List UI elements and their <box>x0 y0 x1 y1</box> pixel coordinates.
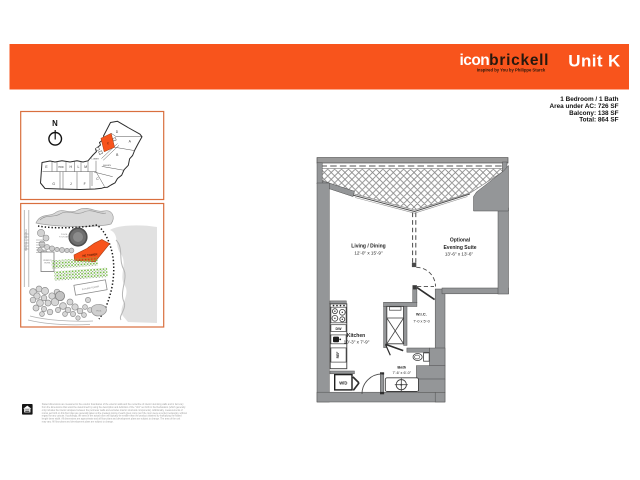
svg-text:regard for any cutouts. Accord: regard for any cutouts. Accordingly, the… <box>42 415 182 418</box>
svg-text:10'-3" x 7'-9": 10'-3" x 7'-9" <box>344 340 370 345</box>
svg-text:M: M <box>84 165 87 169</box>
svg-text:FOUNTAIN: FOUNTAIN <box>59 236 70 239</box>
svg-text:LOBBY: LOBBY <box>92 158 100 160</box>
svg-text:Living / Dining: Living / Dining <box>351 243 385 249</box>
svg-text:G: G <box>52 182 55 186</box>
svg-text:may vary. All floor plans and: may vary. All floor plans and developmen… <box>42 420 114 423</box>
svg-text:iconbrickell: iconbrickell <box>460 52 550 69</box>
svg-text:REF: REF <box>336 352 340 359</box>
svg-text:Kitchen: Kitchen <box>347 333 365 339</box>
svg-text:HRD: HRD <box>58 166 63 169</box>
svg-text:N: N <box>52 119 58 128</box>
svg-text:W/D: W/D <box>339 381 347 386</box>
svg-text:from the dimensions that would: from the dimensions that would be determ… <box>42 406 186 409</box>
svg-text:J: J <box>70 182 72 186</box>
svg-text:Optional: Optional <box>450 238 471 244</box>
svg-text:W.I.C.: W.I.C. <box>416 312 427 317</box>
svg-text:Total: 864 SF: Total: 864 SF <box>579 117 618 124</box>
svg-text:POOL: POOL <box>96 311 101 313</box>
svg-text:13'-6" x 13'-6": 13'-6" x 13'-6" <box>445 252 474 257</box>
svg-text:L: L <box>77 165 79 169</box>
svg-text:Bath: Bath <box>397 365 406 370</box>
svg-text:Inspired by You by Philippe St: Inspired by You by Philippe Starck <box>477 68 546 73</box>
svg-text:Evening Suite: Evening Suite <box>443 245 476 251</box>
svg-text:DW: DW <box>336 327 343 331</box>
svg-text:HOTEL: HOTEL <box>44 263 50 265</box>
svg-text:7'-6' x 6'-0": 7'-6' x 6'-0" <box>393 371 412 375</box>
svg-text:BRICKELL AVENUE: BRICKELL AVENUE <box>25 229 28 251</box>
svg-text:only includes the interior air: only includes the interior airspace betw… <box>42 409 183 412</box>
svg-text:length times width. All dimens: length times width. All dimensions are a… <box>42 417 181 420</box>
svg-text:7'-0 x 5'-0: 7'-0 x 5'-0 <box>413 319 429 323</box>
svg-text:F: F <box>84 182 86 186</box>
svg-text:PLAZA: PLAZA <box>61 233 68 236</box>
svg-text:12'-0" x 15'-9": 12'-0" x 15'-9" <box>354 250 383 255</box>
svg-text:Unit K: Unit K <box>568 52 621 71</box>
svg-text:Stated dimensions are measured: Stated dimensions are measured to the ex… <box>42 403 185 406</box>
svg-text:B-ELEV: B-ELEV <box>103 165 111 167</box>
svg-text:rooms set forth on this floor: rooms set forth on this floor plan are g… <box>42 412 188 415</box>
